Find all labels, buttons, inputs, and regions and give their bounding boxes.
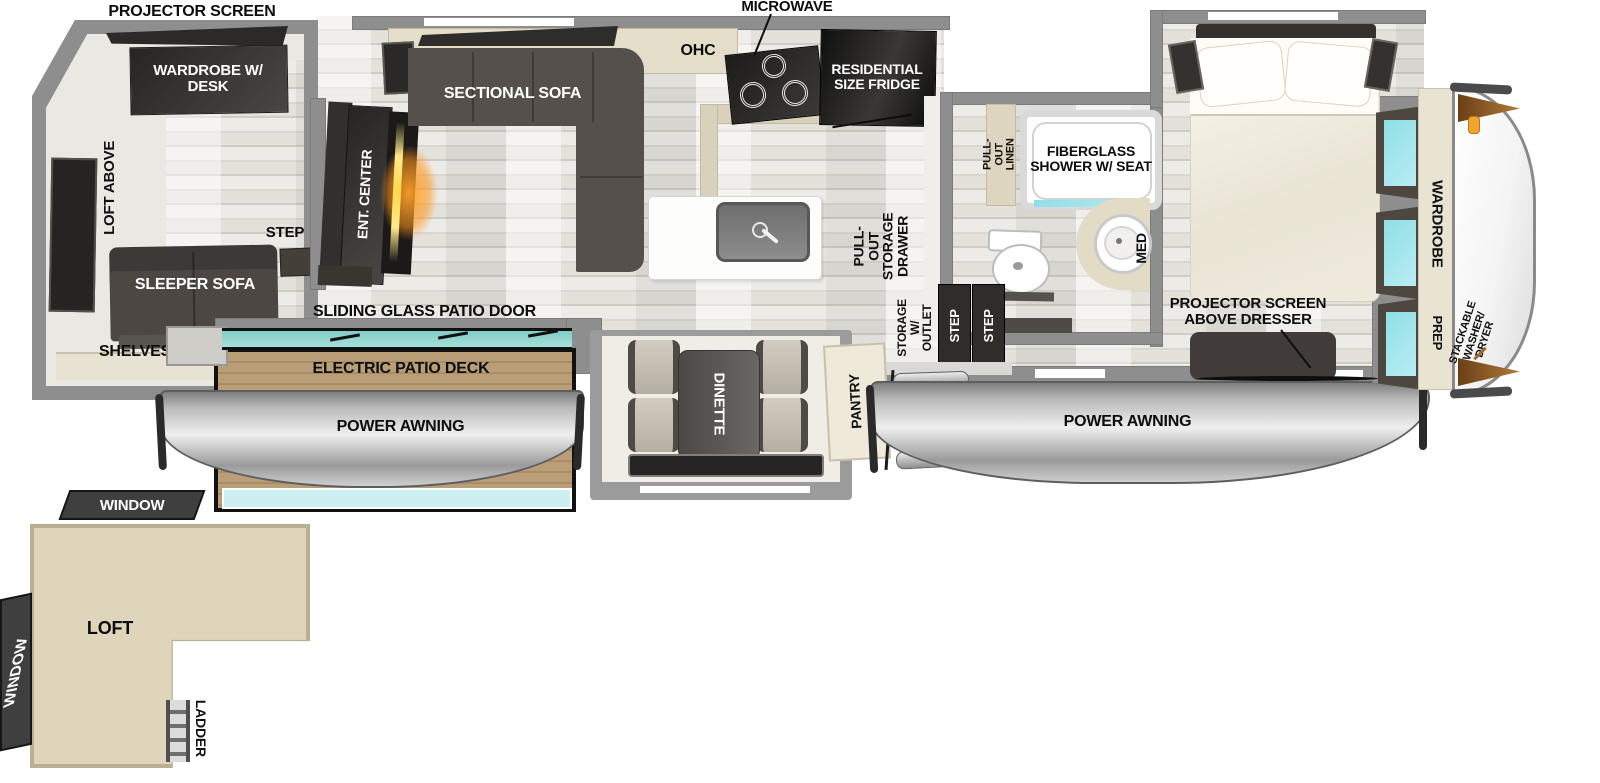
sectional-cushion-seam-4 <box>580 176 642 178</box>
pull-out-linen-label-wrap: PULL-OUT LINEN <box>984 108 1016 200</box>
window-tag-top: WINDOW <box>59 490 206 520</box>
bath-top-wall <box>940 92 1162 105</box>
ladder-label: LADDER <box>194 699 209 756</box>
ent-center-label: ENT. CENTER <box>355 149 374 239</box>
rear-tv-screen <box>49 158 98 313</box>
grab-handle-icon <box>1468 116 1480 134</box>
power-awning-right-label: POWER AWNING <box>1010 412 1245 432</box>
pull-out-linen-label: PULL-OUT LINEN <box>983 138 1018 170</box>
bedroom-window-3-glass <box>1386 312 1416 376</box>
window-tag-top-label: WINDOW <box>100 497 165 514</box>
bedroom-window-1-glass <box>1384 120 1416 186</box>
dresser <box>1190 332 1336 380</box>
rear-step-label: STEP <box>258 224 312 242</box>
prep-label: PREP <box>1430 316 1444 351</box>
deck-step-left <box>166 326 228 366</box>
med-label: MED <box>1134 233 1149 264</box>
bath-door-threshold <box>1000 318 1072 333</box>
awning-right-endcap-r <box>1419 384 1427 450</box>
ent-center-base <box>318 265 373 287</box>
dinette-sill <box>640 486 810 493</box>
sectional-sofa-vertical <box>576 100 644 272</box>
loft-label: LOFT <box>70 616 150 640</box>
bed-pillow-right <box>1284 40 1375 107</box>
med-label-wrap: MED <box>1128 220 1154 276</box>
window-tag-left-label: WINDOW <box>1 636 32 708</box>
power-awning-left-label: POWER AWNING <box>258 418 543 436</box>
bedroom-window-2 <box>1376 206 1424 300</box>
bath-notch-exterior <box>944 10 1154 92</box>
floorplan-canvas: WARDROBE W/ DESK LOFT ABOVE SLEEPER SOFA… <box>0 0 1600 783</box>
sliding-glass-door-label: SLIDING GLASS PATIO DOOR <box>282 303 567 321</box>
bed-top-window-opening <box>1208 12 1338 20</box>
dinette-label-wrap: DINETTE <box>678 350 758 458</box>
dinette-window <box>628 454 824 477</box>
patio-door-glass <box>222 328 572 350</box>
pantry-label: PANTRY <box>846 373 864 429</box>
ohc-label: OHC <box>672 40 724 62</box>
bath-sink-drain-icon <box>1116 238 1122 244</box>
sectional-sofa-label: SECTIONAL SOFA <box>420 84 605 104</box>
storage-outlet-label-wrap: STORAGE W/ OUTLET <box>894 286 936 370</box>
bed-left-wall <box>1150 10 1163 108</box>
kitchen-counter-side <box>700 104 718 206</box>
window-tag-left: WINDOW <box>0 593 32 752</box>
bedroom-window-2-glass <box>1384 220 1416 286</box>
loft-above-label: LOFT ABOVE <box>102 141 118 235</box>
sleeper-sofa-label: SLEEPER SOFA <box>125 265 265 305</box>
hall-step-2-label: STEP <box>982 309 996 342</box>
deck-lower-window <box>222 488 572 509</box>
dinette-chair-2 <box>628 398 680 452</box>
projector-screen-dresser-label: PROJECTOR SCREEN ABOVE DRESSER <box>1148 294 1348 330</box>
projector-screen-label: PROJECTOR SCREEN <box>92 2 292 22</box>
bedroom-window-1 <box>1376 106 1424 200</box>
bed-pillow-left <box>1195 40 1287 109</box>
toilet-drain-icon <box>1013 262 1023 270</box>
power-awning-right <box>870 381 1430 484</box>
hall-step-2: STEP <box>972 284 1005 368</box>
microwave-label: MICROWAVE <box>722 0 852 16</box>
storage-outlet-label: STORAGE W/ OUTLET <box>896 299 934 357</box>
wardrobe-desk-label: WARDROBE W/ DESK <box>138 52 278 106</box>
hall-step-1: STEP <box>938 284 971 368</box>
residential-fridge-label: RESIDENTIAL SIZE FRIDGE <box>826 38 928 116</box>
stackable-label-wrap: STACKABLE WASHER/ DRYER <box>1446 282 1504 390</box>
dresser-projector-screen-line <box>1198 376 1378 381</box>
ladder-label-wrap: LADDER <box>186 676 216 780</box>
dinette-chair-4 <box>756 398 808 452</box>
dinette-label: DINETTE <box>710 373 726 436</box>
wardrobe-label: WARDROBE <box>1429 180 1445 268</box>
electric-patio-deck-label: ELECTRIC PATIO DECK <box>256 360 546 378</box>
fiberglass-shower-label: FIBERGLASS SHOWER W/ SEAT <box>1028 122 1154 196</box>
dinette-chair-1 <box>628 340 680 394</box>
dinette-chair-3 <box>756 340 808 394</box>
stackable-washer-dryer-label: STACKABLE WASHER/ DRYER <box>1448 300 1501 373</box>
loft-above-label-wrap: LOFT ABOVE <box>94 118 126 258</box>
bottom-wall-opening-1 <box>1035 369 1105 378</box>
hall-step-1-label: STEP <box>948 309 962 342</box>
living-top-window-opening <box>424 18 574 26</box>
pull-out-storage-label: PULL-OUT STORAGE DRAWER <box>852 212 911 280</box>
